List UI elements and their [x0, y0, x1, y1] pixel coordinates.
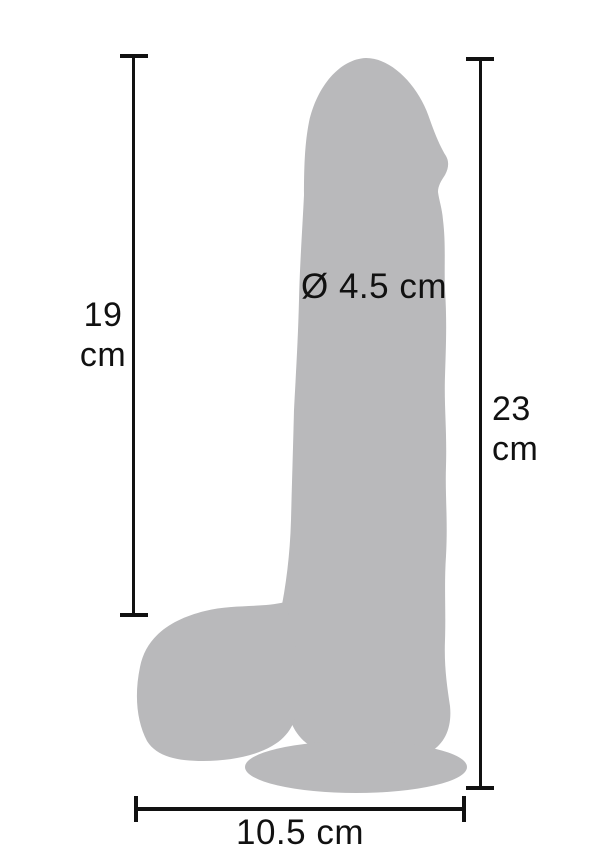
right-dimension-value: 23: [492, 389, 582, 429]
left-dimension-bottom-cap: [120, 613, 148, 617]
testicles-shape: [137, 602, 299, 761]
bottom-dimension-left-tick: [134, 796, 138, 822]
right-dimension-top-cap: [466, 57, 494, 61]
bottom-dimension-line: [136, 807, 466, 811]
left-dimension-value: 19: [58, 295, 148, 335]
right-dimension-line: [479, 58, 482, 788]
bottom-dimension-right-tick: [462, 796, 466, 822]
left-dimension-top-cap: [120, 54, 148, 58]
shaft-and-head-shape: [278, 58, 450, 752]
right-dimension-bottom-cap: [466, 786, 494, 790]
diameter-label: Ø 4.5 cm: [259, 267, 489, 307]
product-dimension-diagram: 19 cm 23 cm Ø 4.5 cm 10.5 cm: [0, 0, 600, 850]
right-dimension-unit: cm: [492, 429, 582, 469]
right-dimension-label: 23 cm: [492, 389, 582, 469]
left-dimension-unit: cm: [58, 335, 148, 375]
left-dimension-label: 19 cm: [58, 295, 148, 375]
suction-base-shape: [245, 741, 467, 793]
bottom-dimension-label: 10.5 cm: [185, 813, 415, 850]
